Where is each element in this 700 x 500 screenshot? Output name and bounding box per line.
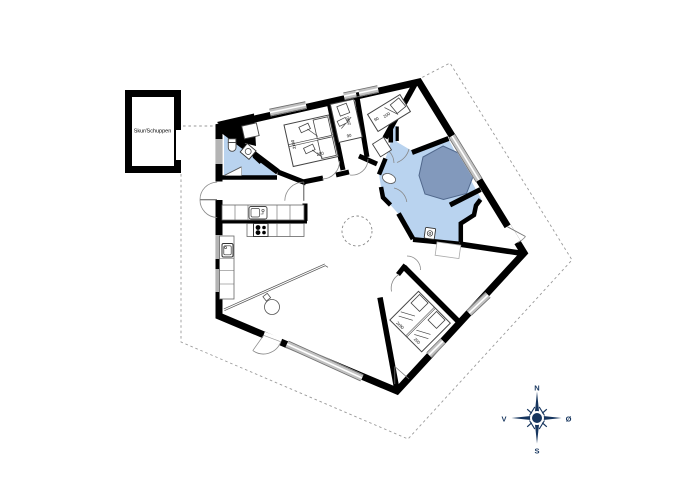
svg-text:Skur/Schuppen: Skur/Schuppen <box>134 129 172 135</box>
svg-text:N: N <box>534 384 539 393</box>
svg-text:S: S <box>534 447 539 456</box>
svg-text:V: V <box>501 415 506 424</box>
svg-text:Ø: Ø <box>566 415 572 424</box>
